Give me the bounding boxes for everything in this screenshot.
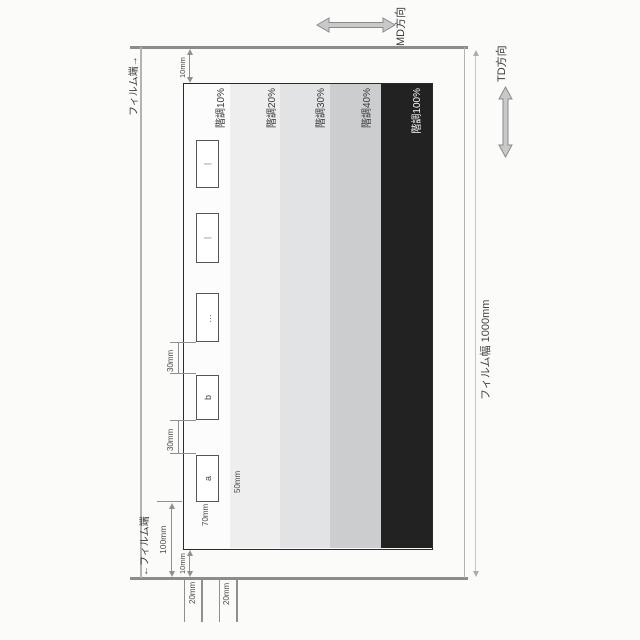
gradation-stripe-30: [330, 85, 381, 549]
film-edge-line-right: [130, 46, 468, 49]
gradation-label-10: 階調10%: [217, 88, 227, 128]
dim-arrow-right: [187, 550, 193, 556]
dim-label-70mm: 70mm: [202, 504, 210, 526]
film-section-end-bottom: [464, 47, 466, 578]
dim-ext-line: [157, 501, 182, 502]
dim-arrow-right: [169, 503, 175, 509]
dim-arrow-left: [169, 571, 175, 577]
film-edge-label-left: ←フィルム端: [141, 516, 151, 576]
dim-arrow-right: [473, 50, 479, 56]
dim-line-30mm-bdots: [178, 343, 179, 374]
dim-label-100mm: 100mm: [159, 526, 168, 554]
edge-mark-line-4: [236, 578, 238, 622]
dim-arrow-right: [187, 49, 193, 55]
md-direction-label: MD方向: [396, 7, 407, 46]
dim-line-100mm: [171, 506, 172, 574]
film-edge-line-left: [130, 577, 468, 580]
rotated-figure-stage: フィルム端→ ←フィルム端 階調10% 階調20% 階調30% 階調40% 階調…: [0, 0, 640, 640]
dim-label-10mm-right: 10mm: [179, 57, 187, 78]
dim-ext-line: [170, 454, 196, 455]
film-width-label: フィルム幅 1000mm: [481, 300, 492, 400]
gradation-label-30: 階調30%: [317, 88, 327, 128]
td-direction-label: TD方向: [497, 45, 508, 82]
gradation-label-20: 階調20%: [268, 88, 278, 128]
gradation-label-40: 階調40%: [363, 88, 373, 128]
gradation-stripe-100: [381, 85, 432, 549]
dim-ext-line: [170, 342, 196, 343]
edge-mark-line-1: [184, 578, 186, 622]
gradation-label-100: 階調100%: [413, 88, 423, 134]
dim-label-20mm-1: 20mm: [189, 582, 197, 604]
film-edge-label-right: フィルム端→: [130, 56, 140, 116]
dim-line-10mm-right: [189, 51, 190, 80]
film-section-end-top: [140, 47, 142, 578]
td-direction-arrow: [497, 86, 514, 158]
mark-rect-b: b: [196, 375, 219, 420]
dim-label-30mm-bdots: 30mm: [167, 350, 175, 372]
mark-rect-a: a: [196, 455, 219, 502]
dim-ext-line: [170, 374, 196, 375]
dim-arrow-left: [187, 571, 193, 577]
dim-label-20mm-2: 20mm: [223, 583, 231, 605]
dim-label-10mm-left: 10mm: [179, 553, 187, 574]
mark-rect-4: |: [196, 213, 219, 263]
md-direction-arrow: [316, 16, 396, 34]
dim-label-30mm-ab: 30mm: [167, 429, 175, 451]
gradation-stripe-20: [280, 85, 330, 549]
dim-arrow-left: [187, 77, 193, 83]
mark-rect-5: |: [196, 140, 219, 188]
edge-mark-line-2: [201, 578, 203, 622]
mark-rect-dots: …: [196, 293, 219, 342]
dim-line-film-width: [475, 56, 476, 572]
dim-arrow-left: [473, 571, 479, 577]
dim-line-30mm-ab: [178, 421, 179, 454]
dim-ext-line: [170, 420, 196, 421]
edge-mark-line-3: [219, 578, 221, 622]
dim-label-50mm: 50mm: [234, 471, 242, 493]
